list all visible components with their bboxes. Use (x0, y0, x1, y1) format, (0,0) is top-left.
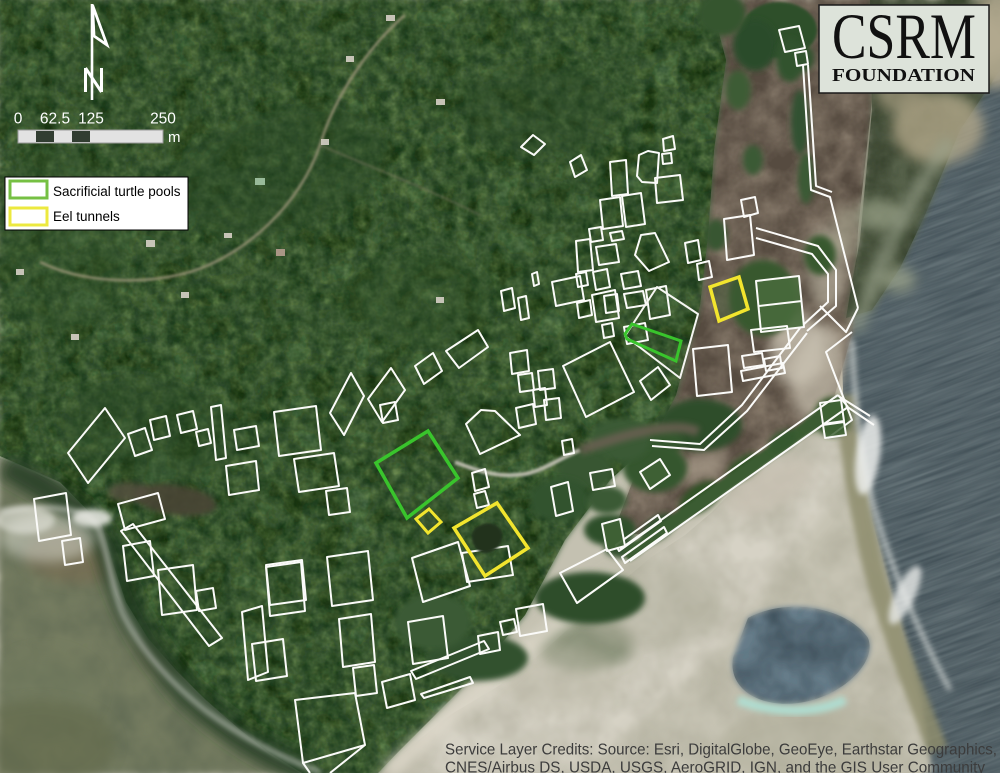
svg-text:FOUNDATION: FOUNDATION (832, 65, 975, 85)
svg-text:125: 125 (78, 111, 104, 128)
svg-text:Sacrificial turtle pools: Sacrificial turtle pools (53, 184, 181, 199)
svg-text:62.5: 62.5 (40, 111, 70, 128)
svg-text:m: m (168, 129, 181, 146)
svg-text:250: 250 (150, 111, 176, 128)
svg-text:Eel tunnels: Eel tunnels (53, 209, 120, 224)
svg-text:CSRM: CSRM (832, 1, 976, 73)
svg-text:Service Layer Credits: Source: Service Layer Credits: Source: Esri, Dig… (445, 742, 997, 759)
svg-text:CNES/Airbus DS, USDA, USGS, Ae: CNES/Airbus DS, USDA, USGS, AeroGRID, IG… (445, 760, 985, 773)
svg-text:0: 0 (14, 111, 23, 128)
